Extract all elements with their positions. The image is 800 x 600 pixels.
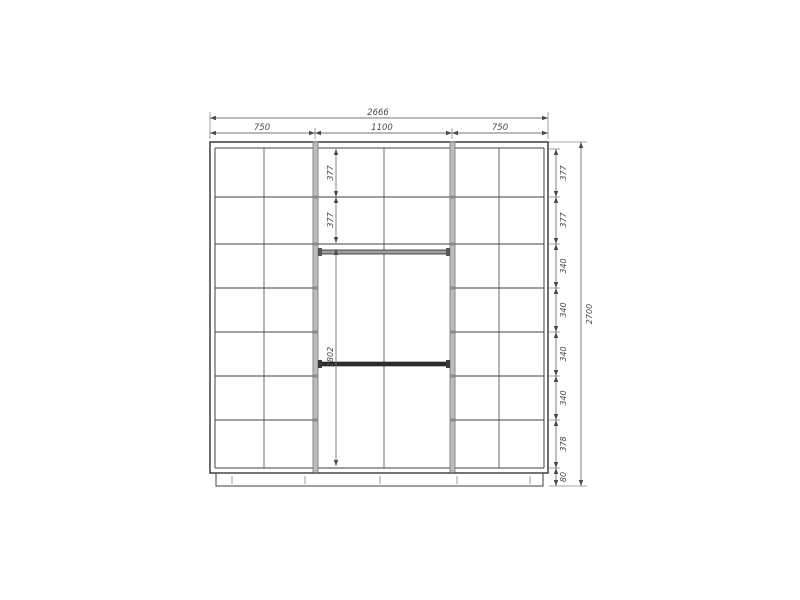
- cabinet-outer-frame: [210, 142, 548, 473]
- top-dimensions: 2666 750 1100 750: [210, 108, 548, 139]
- right-section-shelves: [455, 148, 544, 468]
- wardrobe-technical-drawing: 2666 750 1100 750 377 377 340 340 340 34…: [0, 0, 800, 600]
- dim-label-hanging-height: 1802: [326, 347, 335, 367]
- vertical-panel-left: [313, 142, 318, 473]
- dim-label-row-6: 340: [559, 390, 568, 405]
- dim-label-plinth: 80: [559, 472, 568, 482]
- vertical-panel-right: [450, 142, 455, 473]
- cabinet-structure: [210, 142, 548, 486]
- right-dimensions: 377 377 340 340 340 340 378 80 2700: [549, 142, 594, 486]
- dim-label-mid-row-2: 377: [326, 211, 335, 227]
- dim-label-row-5: 340: [559, 346, 568, 361]
- dim-label-overall-width: 2666: [367, 108, 389, 118]
- dim-label-overall-height: 2700: [585, 304, 594, 324]
- dim-label-section-left: 750: [254, 123, 270, 133]
- dim-label-mid-row-1: 377: [326, 164, 335, 180]
- dim-label-row-2: 377: [559, 211, 568, 227]
- dim-label-row-3: 340: [559, 258, 568, 273]
- middle-hanging-section: [318, 148, 450, 468]
- dim-label-row-4: 340: [559, 302, 568, 317]
- dim-label-section-right: 750: [492, 123, 508, 133]
- base-plinth: [216, 473, 543, 486]
- dim-label-row-1: 377: [559, 164, 568, 180]
- dim-label-row-7: 378: [559, 436, 568, 451]
- dim-label-section-middle: 1100: [371, 123, 393, 133]
- drawing-canvas: 2666 750 1100 750 377 377 340 340 340 34…: [0, 0, 800, 600]
- left-section-shelves: [215, 148, 313, 468]
